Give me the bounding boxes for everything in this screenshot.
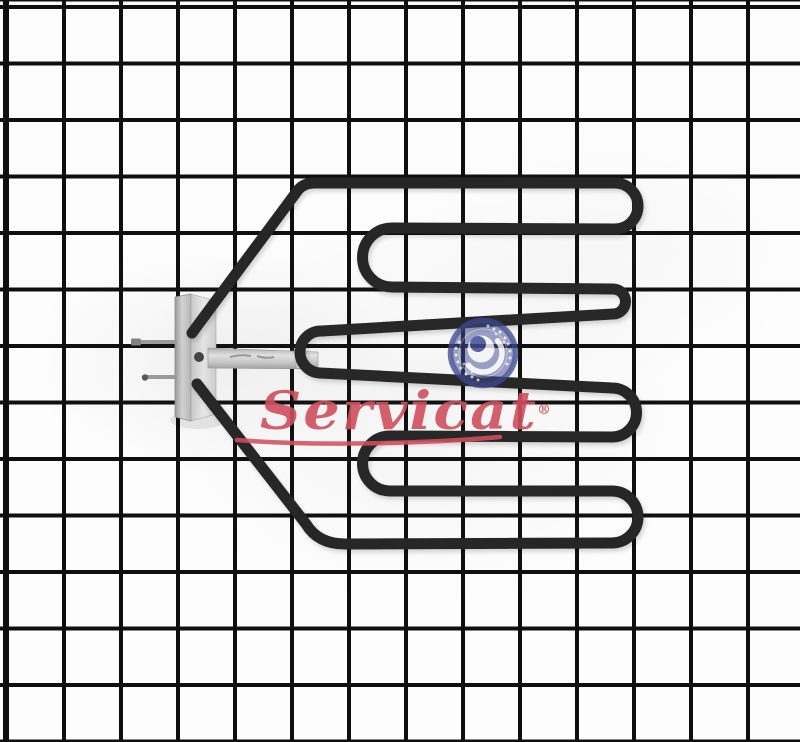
heating-element-scene: Servicat ® xyxy=(0,0,800,742)
servicat-logo-icon xyxy=(451,321,516,386)
servicat-wordmark-group: Servicat ® xyxy=(237,381,551,444)
registered-trademark-symbol: ® xyxy=(537,402,551,418)
terminal-wires xyxy=(131,339,177,381)
servicat-wordmark: Servicat xyxy=(260,381,538,442)
lower-terminal-tip xyxy=(142,374,148,380)
product-photo: Servicat ® xyxy=(0,0,800,742)
upper-terminal-crimp xyxy=(131,339,141,346)
bracket-bolt-hole xyxy=(194,352,204,362)
bracket-plate-edge xyxy=(175,294,191,421)
